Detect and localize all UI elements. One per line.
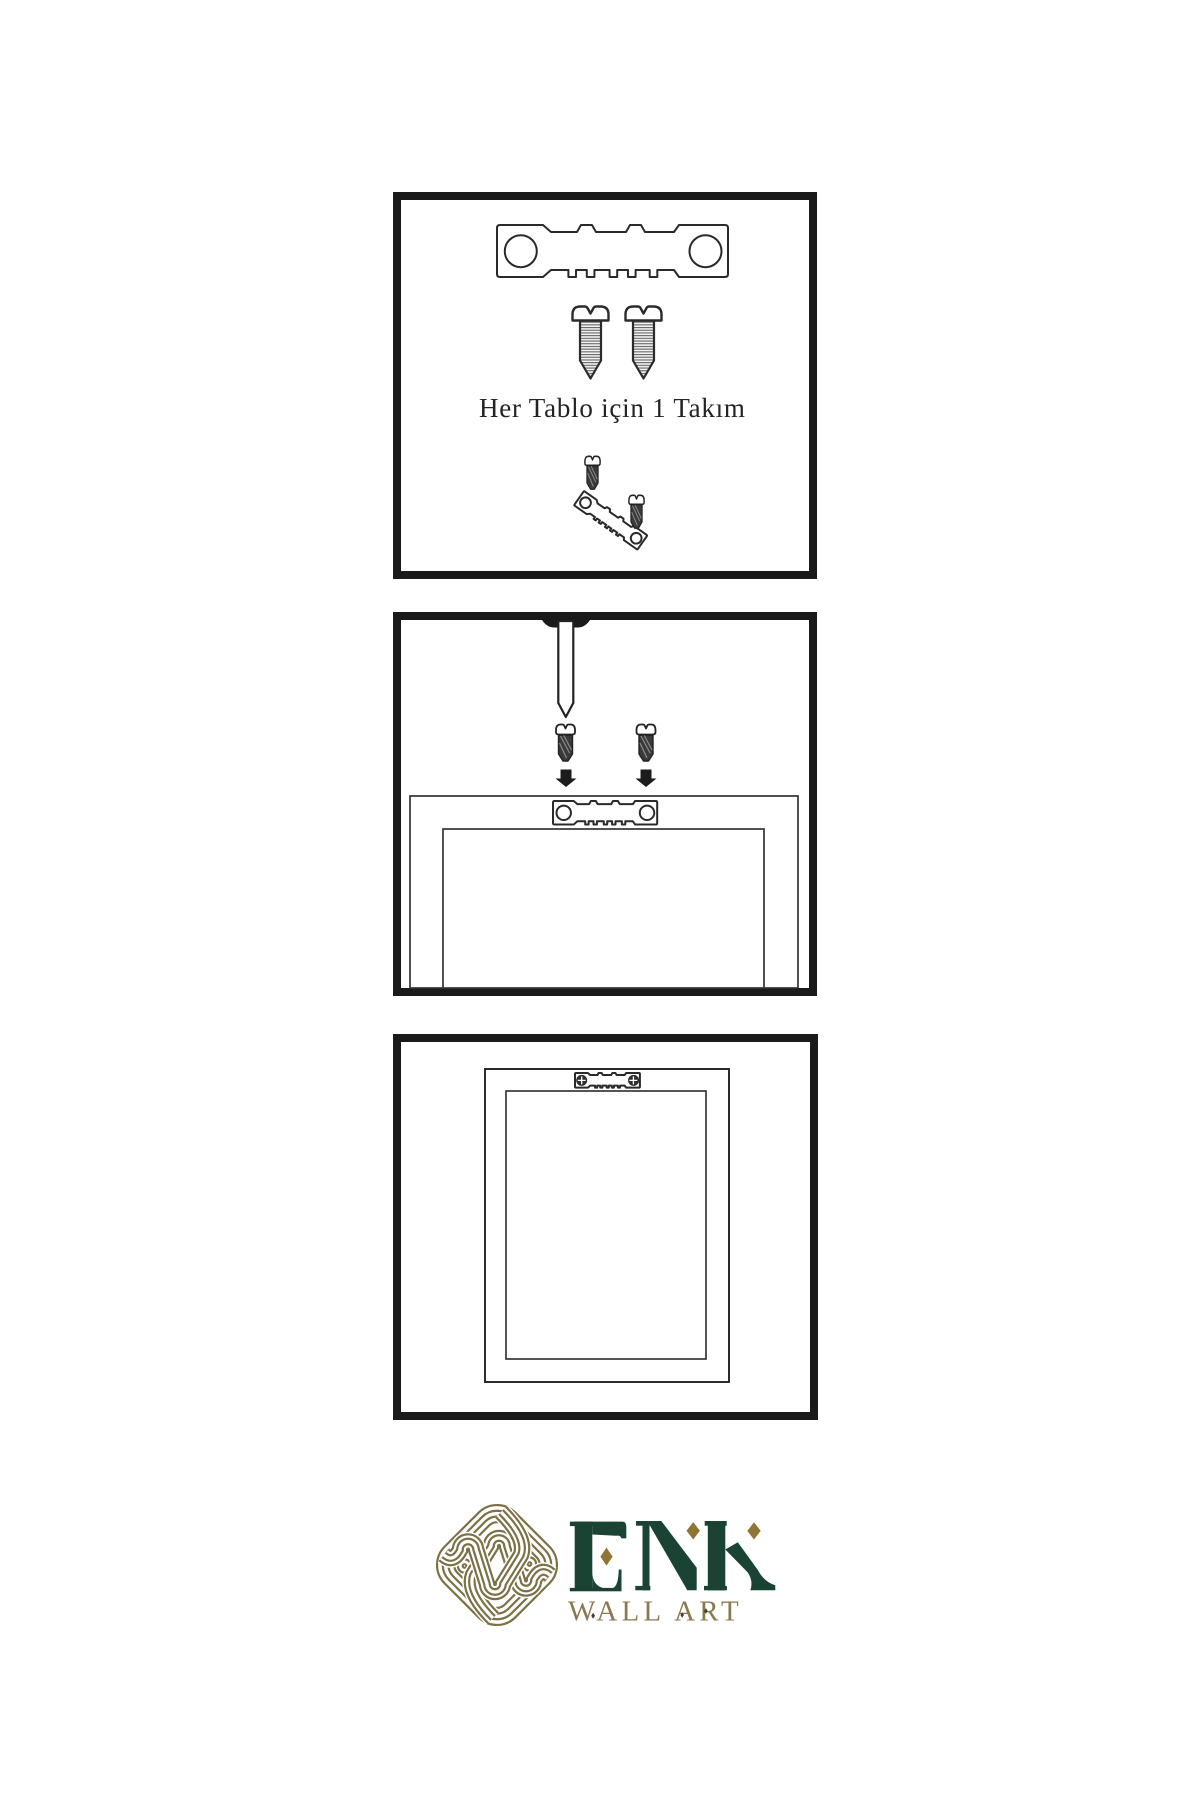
svg-text:WALL ART: WALL ART bbox=[568, 1596, 743, 1628]
svg-text:Her Tablo için 1 Takım: Her Tablo için 1 Takım bbox=[479, 393, 746, 423]
